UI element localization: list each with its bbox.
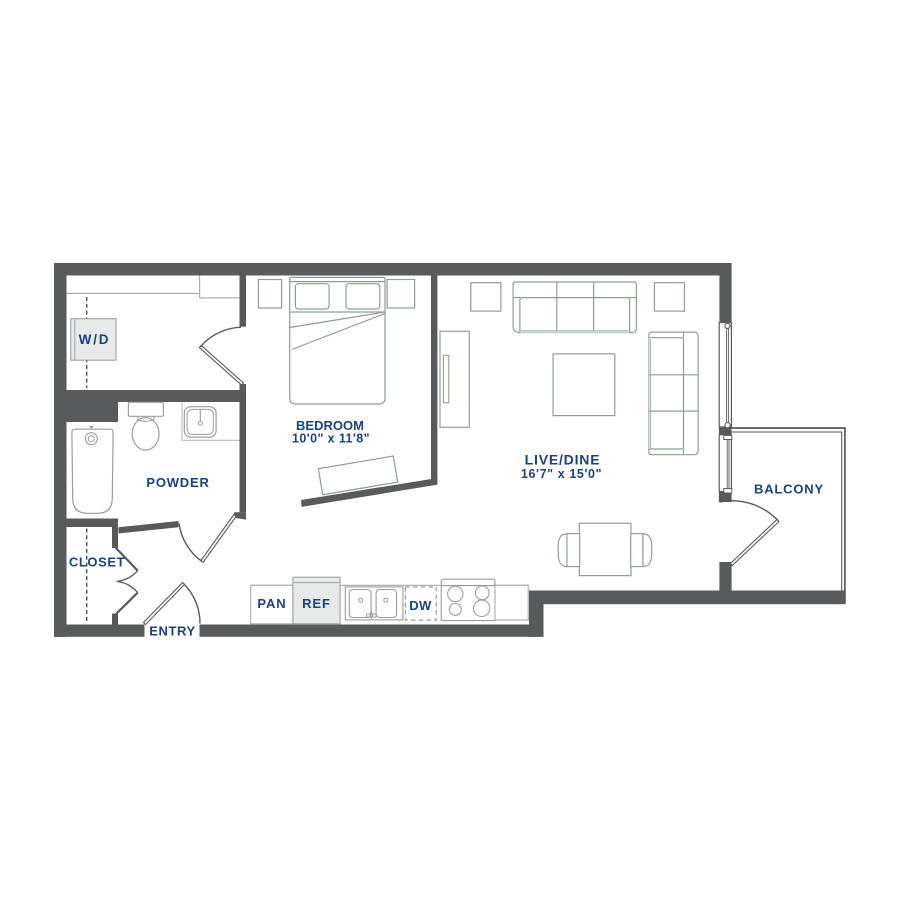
- svg-text:PAN: PAN: [257, 596, 286, 611]
- svg-text:ENTRY: ENTRY: [149, 624, 196, 639]
- svg-text:DW: DW: [409, 598, 432, 613]
- svg-text:W/D: W/D: [79, 332, 111, 347]
- svg-text:16'7" x 15'0": 16'7" x 15'0": [521, 467, 602, 481]
- svg-text:LIVE/DINE: LIVE/DINE: [525, 452, 601, 468]
- svg-text:BALCONY: BALCONY: [754, 482, 824, 497]
- svg-text:10'0" x 11'8": 10'0" x 11'8": [292, 432, 370, 446]
- svg-text:REF: REF: [302, 596, 331, 611]
- svg-text:CLOSET: CLOSET: [69, 555, 125, 570]
- svg-text:POWDER: POWDER: [146, 475, 209, 490]
